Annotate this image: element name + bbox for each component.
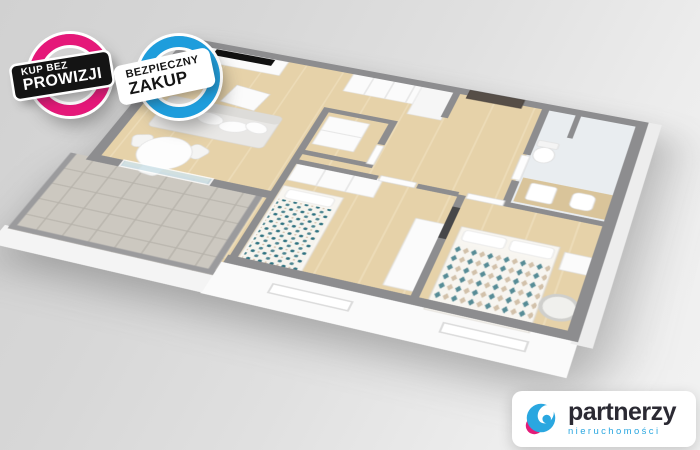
agency-logo-name: partnerzy <box>568 401 676 425</box>
agency-logo-text: partnerzy nieruchomości <box>568 401 676 437</box>
agency-logo: partnerzy nieruchomości <box>512 391 696 447</box>
badge-no-commission: KUP BEZ PROWIZJI <box>29 34 111 116</box>
agency-logo-subtitle: nieruchomości <box>568 426 676 437</box>
agency-logo-icon <box>522 400 560 438</box>
real-estate-3d-render: KUP BEZ PROWIZJI BEZPIECZNY ZAKUP partne… <box>0 0 700 450</box>
badge-safe-purchase: BEZPIECZNY ZAKUP <box>138 36 220 118</box>
